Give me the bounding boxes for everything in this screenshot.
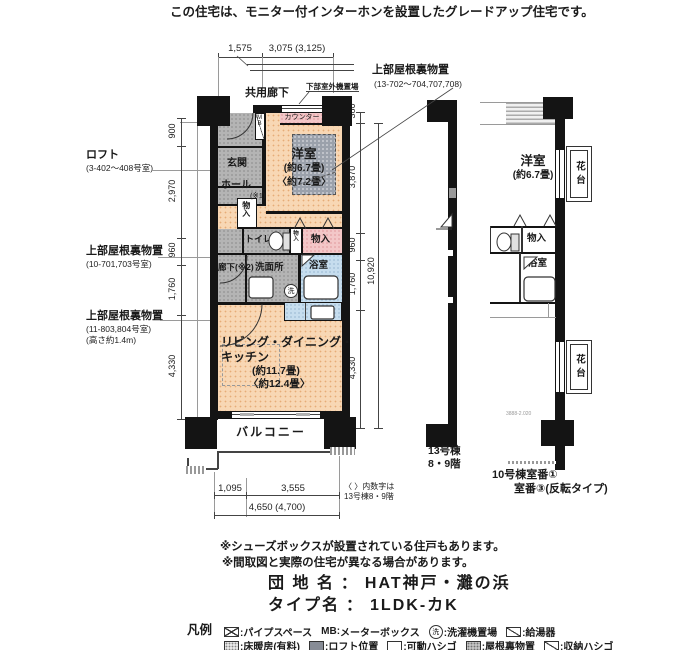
- wall-left: [210, 105, 218, 420]
- wall-interior: [301, 228, 303, 254]
- flower-stand-bottom-label: 花台: [572, 354, 586, 381]
- dim-tick: [356, 260, 365, 261]
- dim-right-total-10920: 10,920: [366, 249, 376, 293]
- b10-western-room-size: (約6.7畳): [498, 170, 568, 181]
- window-frame-mark: [240, 413, 254, 416]
- pillar-bottom-left: [185, 417, 217, 449]
- b10-storage-label: 物入: [527, 234, 546, 244]
- estate-name-label: 団 地 名: [268, 575, 335, 592]
- corridor-label: 共用廊下: [245, 87, 289, 99]
- b13-label-1: 13号棟: [428, 446, 461, 458]
- dim-tick: [356, 310, 365, 311]
- b13-label-2: 8・9階: [428, 459, 461, 471]
- b10-pillar-bottom: [541, 420, 574, 446]
- dim-tick: [374, 428, 383, 429]
- b10-label-2: 室番③(反転タイプ): [514, 483, 608, 495]
- b13-wall-notch: [448, 250, 453, 256]
- estate-type-colon: ：: [346, 597, 364, 614]
- estate-type-value: 1LDK-カK: [370, 597, 459, 614]
- legend-water-heater: :給湯器: [522, 624, 555, 639]
- b10-wall-thin: [490, 302, 556, 304]
- dim-tick: [246, 492, 247, 499]
- dim-line: [360, 112, 361, 428]
- attic1-rooms: (10-701,703号室): [86, 258, 152, 270]
- entrance-door-gap: [227, 105, 253, 113]
- corridor-line: [247, 64, 354, 65]
- storage-small-label: 物入: [292, 230, 298, 252]
- estate-name-line: 団 地 名：HAT神戸・灘の浜: [268, 575, 511, 593]
- boundary-line: [197, 122, 198, 417]
- ext-line: [339, 456, 340, 517]
- dim-tick: [374, 123, 383, 124]
- note-shoes: ※シューズボックスが設置されている住戸もあります。: [220, 541, 505, 554]
- leader: [158, 257, 210, 258]
- attic2-height: (高さ約1.4m): [86, 334, 136, 346]
- legend-loft-position: :ロフト位置: [325, 638, 378, 650]
- legend-storage-ladder: :収納ハシゴ: [560, 638, 613, 650]
- b13-wall: [448, 100, 457, 425]
- dim-line: [214, 515, 340, 516]
- b10-faint-mark: 3888-2.020: [506, 411, 531, 417]
- b10-wall-thin: [548, 303, 549, 318]
- b10-bathroom-label: 浴室: [528, 259, 547, 269]
- ldk-size-alt: 〈約12.4畳〉: [248, 379, 310, 391]
- pipe-space-icon: [224, 627, 239, 637]
- b13-pillar-bottom: [426, 424, 457, 447]
- b10-top-line: [480, 124, 555, 125]
- dim-tick: [177, 315, 186, 316]
- washing-machine-mark-char: 洗: [288, 286, 295, 296]
- ldk-size: (約11.7畳): [252, 366, 300, 378]
- storage-right-label: 物入: [311, 235, 330, 245]
- counter-label: カウンター: [281, 114, 323, 122]
- legend-floor-heating: :床暖房(有料): [240, 638, 300, 650]
- b13-wall-notch: [448, 297, 453, 303]
- top-note: この住宅は、モニター付インターホンを設置したグレードアップ住宅です。: [170, 6, 570, 20]
- flower-stand-top-inner: 花台: [570, 150, 588, 198]
- ext-line: [218, 57, 219, 100]
- legend-movable-ladder: :可動ハシゴ: [403, 638, 456, 650]
- corridor2-label: 廊下(※2): [218, 263, 254, 272]
- ldk-label-1: リビング・ダイニング・: [221, 336, 353, 349]
- b10-wall-thin: [490, 226, 556, 228]
- dim-line: [214, 495, 340, 496]
- attic1-label: 上部屋根裏物置: [86, 245, 163, 257]
- western-room-size-alt: 〈約7.2畳〉: [266, 177, 342, 188]
- dim-left-900: 900: [167, 109, 177, 153]
- balcony-label: バルコニー: [217, 426, 325, 439]
- wall-interior: [266, 211, 342, 214]
- railing-hatch: [186, 466, 206, 474]
- washing-machine-icon-char: 洗: [432, 627, 439, 637]
- dim-line: [181, 118, 182, 420]
- dim-left-2970: 2,970: [167, 169, 177, 213]
- legend-title: 凡例: [187, 624, 212, 638]
- flower-stand-top-label: 花台: [572, 161, 586, 188]
- western-room-label: 洋室: [266, 148, 342, 162]
- wall-interior: [289, 228, 291, 254]
- counter-window-line: [282, 108, 324, 109]
- b10-wall-thin: [490, 226, 491, 253]
- estate-type-line: タイプ名：1LDK-カK: [268, 597, 459, 615]
- western-room-size: (約6.7畳): [266, 163, 342, 174]
- wall-interior: [298, 254, 301, 303]
- counter-window: [282, 105, 324, 113]
- attic2-label: 上部屋根裏物置: [86, 310, 163, 322]
- loft-label: ロフト: [86, 149, 119, 161]
- b10-western-room-label: 洋室: [498, 155, 568, 169]
- legend-attic-storage: :屋根裏物置: [482, 638, 535, 650]
- storage-ladder-icon: [544, 641, 559, 650]
- toilet-label: トイレ: [245, 235, 272, 245]
- b13-meter-mark: [449, 188, 456, 198]
- dim-tick: [177, 265, 186, 266]
- ext-line: [262, 57, 263, 90]
- kitchen-divider: [305, 303, 306, 320]
- b10-bottom-hatch: [508, 461, 556, 464]
- dim-tick: [339, 512, 340, 519]
- wall-interior: [242, 228, 244, 254]
- water-heater-icon: [506, 627, 521, 637]
- wall-right: [342, 105, 350, 420]
- entrance-label: 玄関: [227, 158, 247, 169]
- legend-row-1: :パイプスペース MB:メーターボックス 洗:洗濯機置場 :給湯器: [224, 624, 564, 639]
- leader: [160, 320, 210, 321]
- meter-box-label: MB: [256, 115, 263, 139]
- legend-meter-box: メーターボックス: [340, 624, 420, 639]
- note-difference: ※間取図と実際の住宅が異なる場合があります。: [222, 557, 474, 570]
- b10-window: [555, 342, 565, 392]
- floor-heating-icon: [224, 641, 239, 650]
- ldk-label-2: キッチン: [221, 351, 269, 364]
- washing-machine-icon: 洗: [429, 625, 443, 639]
- dim-tick: [214, 512, 215, 519]
- flower-stand-bottom-inner: 花台: [570, 344, 588, 390]
- corridor-line: [250, 70, 354, 71]
- dim-left-4330: 4,330: [167, 344, 177, 388]
- attic-13-title: 上部屋根裏物置: [372, 64, 449, 76]
- dim-line-total: [378, 123, 379, 428]
- dim-tick: [177, 146, 186, 147]
- storage-top-label: 物入: [241, 201, 250, 227]
- dim-tick: [356, 123, 365, 124]
- b10-wall-thin: [519, 253, 521, 303]
- wall-interior: [218, 146, 262, 148]
- dim-tick: [339, 492, 340, 499]
- loft-rooms: (3-402〜408号室): [86, 162, 153, 174]
- washing-machine-mark: 洗: [284, 284, 298, 298]
- legend-row-2: :床暖房(有料) :ロフト位置 :可動ハシゴ :屋根裏物置 :収納ハシゴ: [224, 638, 622, 650]
- pillar-top-right: [322, 96, 352, 126]
- dim-bottom-total: 4,650 (4,700): [227, 502, 327, 513]
- dim-tick: [214, 492, 215, 499]
- wall-interior: [218, 253, 342, 255]
- pillar-top-left: [197, 96, 230, 126]
- bracket-note-2: 13号棟8・9階: [344, 491, 394, 502]
- boundary-line: [180, 122, 197, 123]
- balcony-railing: [217, 451, 331, 453]
- estate-name-value: HAT神戸・灘の浜: [365, 575, 511, 592]
- b10-wall-right: [555, 198, 565, 342]
- balcony-railing: [217, 451, 219, 469]
- hall-label: ホール: [221, 180, 251, 191]
- dim-tick: [177, 118, 186, 119]
- attic-13-rooms: (13-702〜704,707,708): [374, 78, 462, 90]
- counter-edge: [280, 123, 324, 125]
- b10-wall-thin: [490, 317, 556, 318]
- dim-tick: [177, 238, 186, 239]
- loft-position-icon: [309, 641, 324, 650]
- legend-mb-label: MB:: [321, 626, 340, 637]
- railing-hatch: [330, 447, 355, 455]
- dim-tick: [356, 112, 365, 113]
- movable-ladder-icon: [387, 641, 402, 650]
- estate-name-colon: ：: [341, 575, 359, 592]
- dim-tick: [356, 233, 365, 234]
- attic-storage-icon: [466, 641, 481, 650]
- dim-bottom-3555: 3,555: [271, 483, 315, 494]
- dim-left-1760: 1,760: [167, 267, 177, 311]
- window-frame-mark: [296, 413, 310, 416]
- kitchen-counter: [284, 302, 342, 321]
- dim-tick: [356, 428, 365, 429]
- washroom-label: 洗面所: [255, 263, 284, 273]
- pillar-bottom-right: [324, 417, 356, 449]
- b10-label-1: 10号棟室番①: [492, 469, 558, 481]
- dim-line: [218, 57, 333, 58]
- legend-pipe-space: :パイプスペース: [240, 624, 312, 639]
- legend-washing-machine: :洗濯機置場: [444, 624, 497, 639]
- b10-wall-thin: [521, 226, 523, 253]
- b10-wall-right: [555, 97, 565, 150]
- note1-mark: (※1): [250, 191, 265, 200]
- estate-type-label: タイプ名: [268, 597, 340, 614]
- b10-wall-thin: [490, 252, 556, 254]
- bathroom-label: 浴室: [309, 261, 328, 271]
- dim-left-960: 960: [167, 228, 177, 272]
- floorplan-page: この住宅は、モニター付インターホンを設置したグレードアップ住宅です。 1,575…: [0, 0, 700, 650]
- dim-top-3075: 3,075 (3,125): [257, 43, 337, 54]
